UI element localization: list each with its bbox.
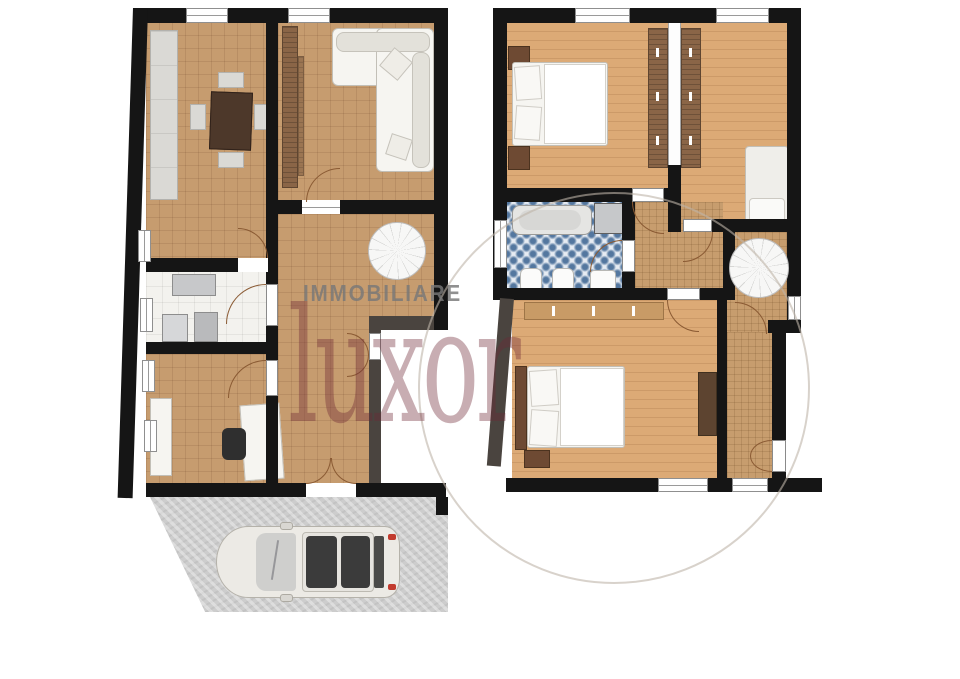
dresser — [698, 372, 717, 436]
kitchen-appliance — [162, 314, 188, 342]
sideboard — [150, 30, 178, 200]
office-door-leaf — [266, 360, 278, 396]
wardrobe-rail-mark — [656, 136, 659, 145]
wall-kitchen-office — [146, 342, 278, 354]
exterior-wall-left-angled — [487, 298, 514, 467]
bedroom2-door-opening — [683, 219, 712, 232]
wardrobe-rail-mark — [689, 92, 692, 101]
bedroom1-door-opening — [632, 188, 664, 202]
shower — [594, 203, 624, 234]
pillow — [529, 369, 559, 407]
window — [575, 8, 630, 23]
exterior-wall-jog — [768, 320, 801, 333]
floorplan-canvas: IMMOBILIARE luxor — [0, 0, 960, 679]
car-taillight — [388, 534, 396, 540]
window — [788, 296, 801, 320]
window — [658, 478, 708, 492]
car-sunroof-rear — [341, 536, 370, 588]
kitchen-appliance — [194, 312, 218, 342]
sofa-back-cushion — [336, 32, 430, 52]
window — [186, 8, 228, 23]
car-sunroof-front — [306, 536, 337, 588]
exterior-wall-bottom — [146, 483, 446, 497]
duvet — [544, 64, 606, 144]
bathtub-basin — [519, 210, 581, 230]
closet-rail-mark — [592, 306, 595, 316]
car-taillight — [388, 584, 396, 590]
tv-wall-panel — [282, 26, 298, 188]
driveway-wall-stub — [436, 497, 448, 515]
window — [494, 220, 507, 268]
pillow — [514, 105, 542, 141]
pillow — [514, 65, 542, 101]
bench — [524, 450, 550, 468]
window — [144, 420, 157, 452]
exterior-wall-right — [787, 8, 801, 333]
duvet — [560, 368, 624, 446]
kitchen-door-leaf — [266, 284, 278, 326]
closet-rail-mark — [632, 306, 635, 316]
dining-chair — [218, 72, 244, 88]
pillow — [529, 409, 559, 447]
wardrobe-rail-mark — [689, 48, 692, 57]
wall-dining-living — [266, 22, 278, 272]
nightstand — [508, 146, 530, 170]
car-rear-window — [374, 536, 384, 588]
entrance-opening — [306, 483, 356, 497]
corridor-exterior-door — [772, 440, 786, 472]
spiral-staircase-ground — [368, 222, 426, 280]
bedroom3-door-opening — [667, 288, 700, 300]
wall-bedroom1-bath — [507, 188, 632, 202]
void-door-leaf — [369, 333, 381, 360]
kitchen-counter-appliance — [172, 274, 216, 296]
wall-bedroom-divider-lower — [668, 165, 681, 232]
dining-chair — [218, 152, 244, 168]
wardrobe-rail-mark — [656, 48, 659, 57]
bathroom-door-leaf — [622, 240, 635, 272]
tv-wall-shelf — [298, 56, 304, 176]
wall-bedroom-divider-upper — [668, 22, 681, 165]
closet-rail-mark — [552, 306, 555, 316]
window — [732, 478, 768, 492]
window — [142, 360, 155, 392]
window — [138, 230, 151, 262]
window — [288, 8, 330, 23]
exterior-wall-right — [434, 8, 448, 330]
car-mirror — [280, 522, 293, 530]
wall-bedroom3-corridor — [717, 300, 727, 478]
kitchen-dining-door-opening — [238, 258, 268, 272]
dining-chair — [190, 104, 206, 130]
window — [716, 8, 769, 23]
living-door-opening — [302, 200, 340, 214]
spiral-staircase-upper — [729, 238, 789, 298]
parked-car — [216, 522, 400, 602]
corridor-right-wall — [772, 333, 786, 440]
wall-bath-bedroom3 — [507, 288, 667, 300]
car-mirror — [280, 594, 293, 602]
wardrobe-rail-mark — [689, 136, 692, 145]
sofa-back-cushion — [412, 52, 430, 168]
wardrobe-rail-mark — [656, 92, 659, 101]
office-chair — [222, 428, 246, 460]
dining-table — [209, 91, 253, 150]
headboard — [515, 366, 527, 450]
window — [140, 298, 153, 332]
